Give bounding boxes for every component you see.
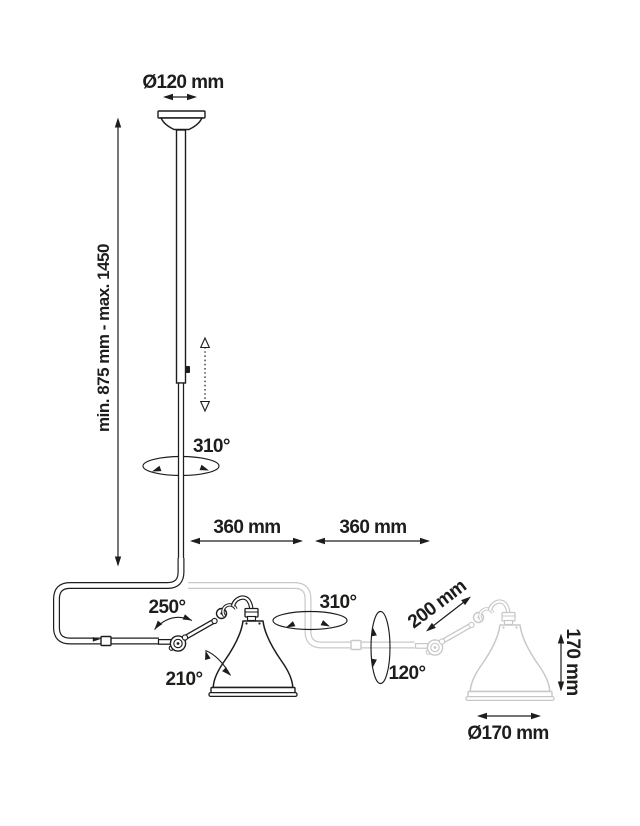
dimension-arrow-left-icon <box>477 713 487 719</box>
dimension-arrow-down-icon <box>115 557 121 567</box>
lamp-technical-diagram: min. 875 mm - max. 1450 Ø120 mm 310° <box>0 0 640 826</box>
reach-left-label: 360 mm <box>213 517 280 538</box>
telescopic-outer-tube <box>177 130 186 383</box>
canopy-dimension: Ø120 mm <box>142 72 223 100</box>
pole-rotation-annotation: 310° <box>143 436 230 476</box>
dimension-arrow-right-icon <box>293 538 303 544</box>
tube-locking-knob <box>186 366 191 373</box>
shade-height-label: 170 mm <box>562 628 583 695</box>
telescopic-inner-rod <box>179 383 184 565</box>
ceiling-canopy-cone <box>161 118 202 130</box>
shade-diameter-label: Ø170 mm <box>467 723 548 744</box>
dimension-arrow-right-icon <box>420 538 430 544</box>
elbow-swivel-label: 250° <box>149 597 186 618</box>
shade-tilt-label: 210° <box>166 669 203 690</box>
ceiling-canopy-plate <box>158 111 205 118</box>
reach-right-label: 360 mm <box>339 517 406 538</box>
canopy-diameter-label: Ø120 mm <box>142 72 223 93</box>
telescope-arrow-up-icon <box>201 338 210 348</box>
lamp-technical-drawing-page: min. 875 mm - max. 1450 Ø120 mm 310° <box>0 0 640 826</box>
telescope-arrow-down-icon <box>201 402 210 412</box>
alternate-tube-sleeve <box>351 641 361 650</box>
rotation-arrow-icon <box>200 465 210 473</box>
arm-rotation-label: 310° <box>320 592 357 613</box>
elbow-swivel-annotation: 250° <box>149 597 194 631</box>
dimension-arrow-up-icon <box>115 118 121 128</box>
ceiling-mount-and-pole <box>158 111 205 565</box>
pole-rotation-label: 310° <box>193 436 230 457</box>
height-range-label: min. 875 mm - max. 1450 <box>94 244 113 432</box>
dimension-arrow-left-icon <box>163 94 173 100</box>
telescopic-adjust-annotation <box>201 338 210 411</box>
rotation-arrow-icon <box>370 659 377 669</box>
shade-diameter-dimension: Ø170 mm <box>467 713 548 744</box>
height-dimension: min. 875 mm - max. 1450 <box>94 118 121 567</box>
dimension-arrow-right-icon <box>187 94 197 100</box>
head-rotation-label: 120° <box>389 663 426 684</box>
dimension-arrow-left-icon <box>190 538 200 544</box>
reach-dimensions: 360 mm 360 mm <box>190 517 430 544</box>
shade-height-dimension: 170 mm <box>558 628 583 695</box>
forearm-dimension: 200 mm <box>404 576 473 634</box>
swivel-arrow-icon <box>152 621 162 632</box>
main-tube-sleeve <box>101 637 111 646</box>
rotation-arrow-icon <box>370 626 377 636</box>
arm-rotation-annotation: 310° <box>273 592 356 630</box>
dimension-arrow-right-icon <box>531 713 541 719</box>
dimension-arrow-left-icon <box>315 538 325 544</box>
